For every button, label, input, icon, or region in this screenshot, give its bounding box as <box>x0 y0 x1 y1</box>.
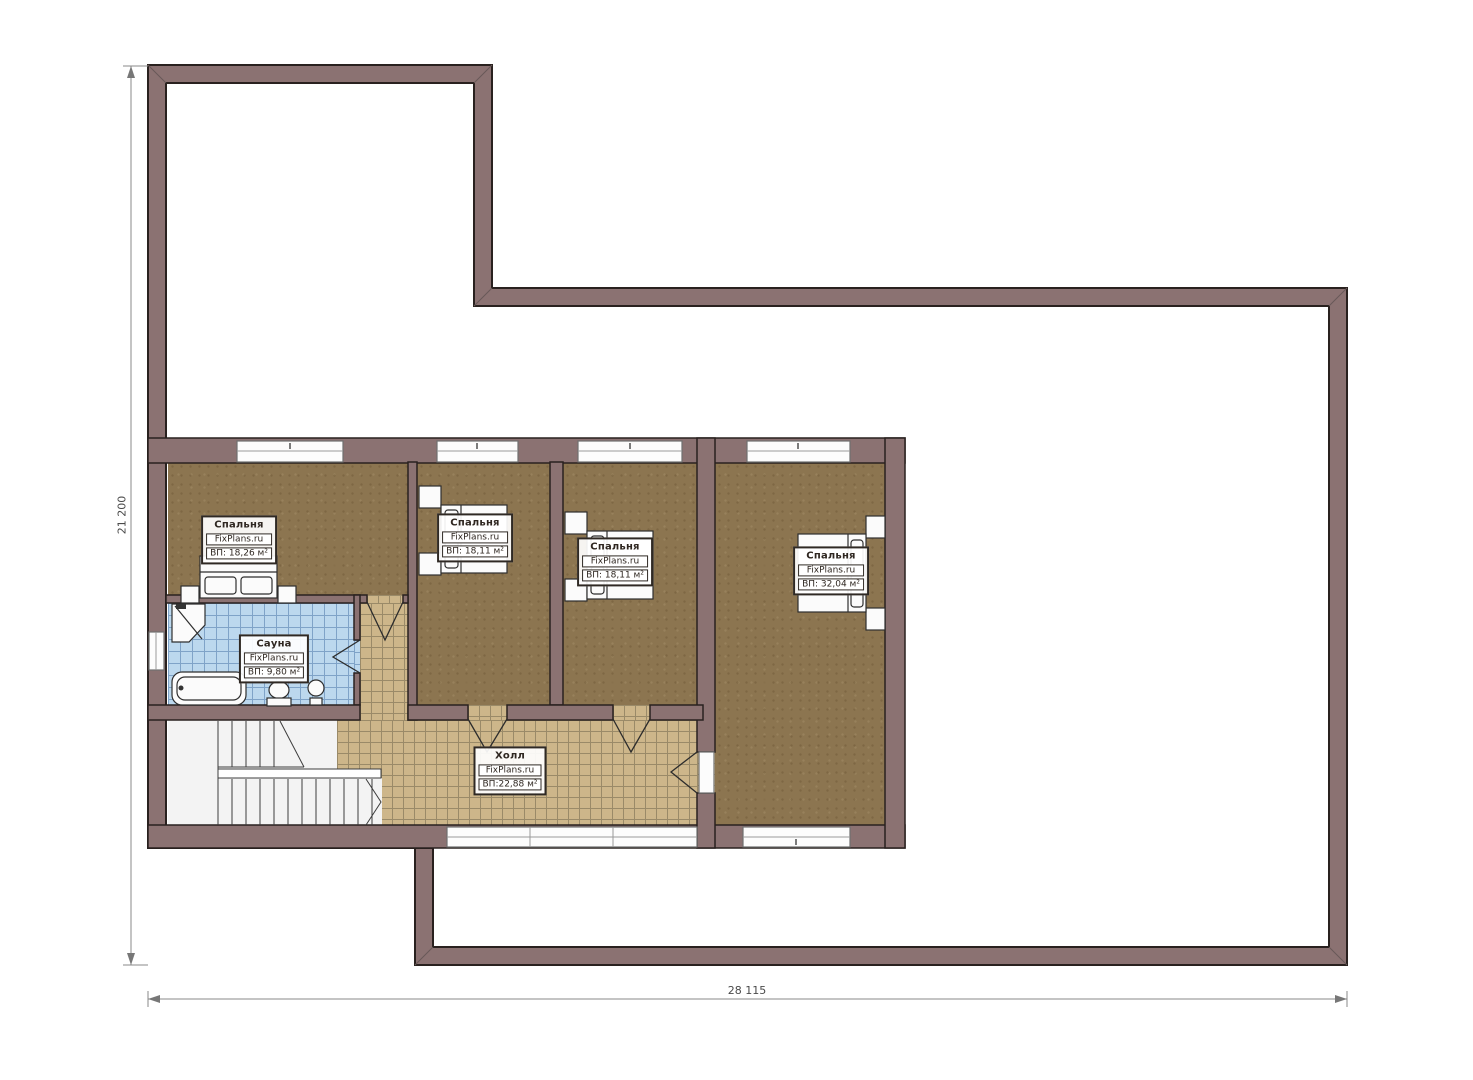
room-name: Сауна <box>244 638 304 650</box>
stair-direction-arrow <box>366 779 381 825</box>
room-area: ВП: 18,26 м² <box>206 547 272 559</box>
toilet-tank <box>267 698 291 706</box>
room-area: ВП:22,88 м² <box>479 778 542 790</box>
room-watermark: FixPlans.ru <box>479 764 542 776</box>
wall-sauna-stairs <box>148 705 360 720</box>
wall-sauna-hall-upper <box>354 595 360 640</box>
staircase <box>218 721 381 825</box>
wall-bedroom3-bedroom4-lower <box>697 793 715 848</box>
room-name: Спальня <box>206 519 272 531</box>
wall-bedroom1-bedroom2 <box>408 462 417 720</box>
wall-right <box>885 438 905 848</box>
room-area: ВП: 9,80 м² <box>244 666 304 678</box>
furniture-beds <box>181 486 885 630</box>
room-label-bedroom-1: Спальня FixPlans.ru ВП: 18,26 м² <box>201 515 277 564</box>
room-label-bedroom-4: Спальня FixPlans.ru ВП: 32,04 м² <box>793 546 869 595</box>
dimension-arrowheads <box>127 66 1347 1003</box>
room-watermark: FixPlans.ru <box>442 531 508 543</box>
room-label-hall: Холл FixPlans.ru ВП:22,88 м² <box>474 746 547 795</box>
room-label-sauna: Сауна FixPlans.ru ВП: 9,80 м² <box>239 634 309 683</box>
room-area: ВП: 18,11 м² <box>582 569 648 581</box>
floor-plan-canvas: Спальня FixPlans.ru ВП: 18,26 м² Спальня… <box>0 0 1473 1080</box>
door-leaf-bedroom-4 <box>699 752 714 793</box>
wall-hall-bedroom23-middle <box>507 705 613 720</box>
room-label-bedroom-2: Спальня FixPlans.ru ВП: 18,11 м² <box>437 513 513 562</box>
room-name: Спальня <box>582 541 648 553</box>
dimension-lines <box>123 66 1347 1007</box>
washbasin <box>308 680 324 696</box>
wall-bedroom1-sauna-stub <box>403 595 408 603</box>
room-area: ВП: 32,04 м² <box>798 578 864 590</box>
shower-faucet-icon <box>176 604 186 609</box>
room-name: Спальня <box>798 550 864 562</box>
wall-hall-bedroom3-right <box>650 705 703 720</box>
stair-break-line <box>280 721 304 767</box>
room-watermark: FixPlans.ru <box>582 555 648 567</box>
dimension-label-height: 21 200 <box>116 496 129 535</box>
washbasin-pedestal <box>310 698 322 705</box>
door-swing-bedroom-1 <box>367 602 403 640</box>
wall-hall-bedroom2-left <box>408 705 468 720</box>
room-area: ВП: 18,11 м² <box>442 545 508 557</box>
door-swing-bedroom-4 <box>671 752 697 793</box>
door-swing-bedroom-3 <box>613 719 650 752</box>
wall-bedroom2-bedroom3 <box>550 462 563 705</box>
room-watermark: FixPlans.ru <box>206 533 272 545</box>
room-name: Спальня <box>442 517 508 529</box>
dimension-label-width: 28 115 <box>728 984 767 997</box>
door-swing-sauna <box>333 640 360 673</box>
wall-sauna-hall-lower <box>354 673 360 705</box>
room-watermark: FixPlans.ru <box>798 564 864 576</box>
toilet <box>269 682 289 699</box>
room-name: Холл <box>479 750 542 762</box>
stair-handrail <box>218 769 381 778</box>
room-watermark: FixPlans.ru <box>244 652 304 664</box>
bathtub-faucet-icon <box>179 686 184 691</box>
room-label-bedroom-3: Спальня FixPlans.ru ВП: 18,11 м² <box>577 537 653 586</box>
